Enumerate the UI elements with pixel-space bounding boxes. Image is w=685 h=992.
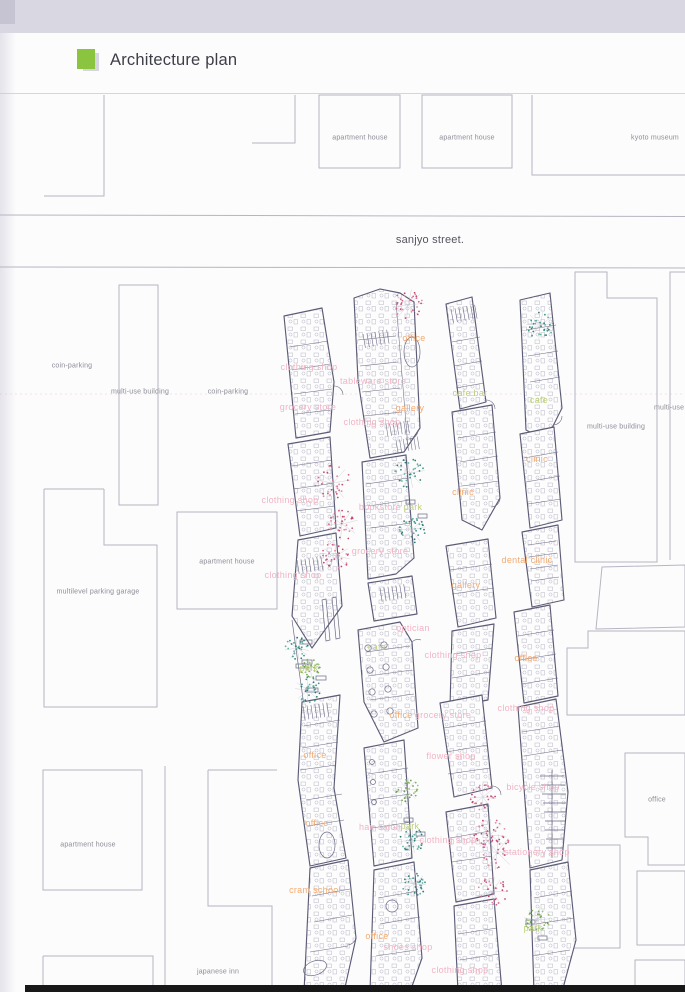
site-plan — [0, 0, 685, 992]
page-title: Architecture plan — [110, 51, 237, 70]
page-header: Architecture plan — [76, 48, 237, 72]
plan-buildings — [284, 289, 576, 992]
bottom-scan-bar — [25, 985, 685, 992]
document-logo-icon — [76, 48, 101, 72]
logo-green-square — [77, 49, 95, 69]
scanned-page: Architecture plan — [0, 0, 685, 992]
street-lines — [0, 94, 685, 395]
surrounding-parcels — [43, 95, 685, 992]
